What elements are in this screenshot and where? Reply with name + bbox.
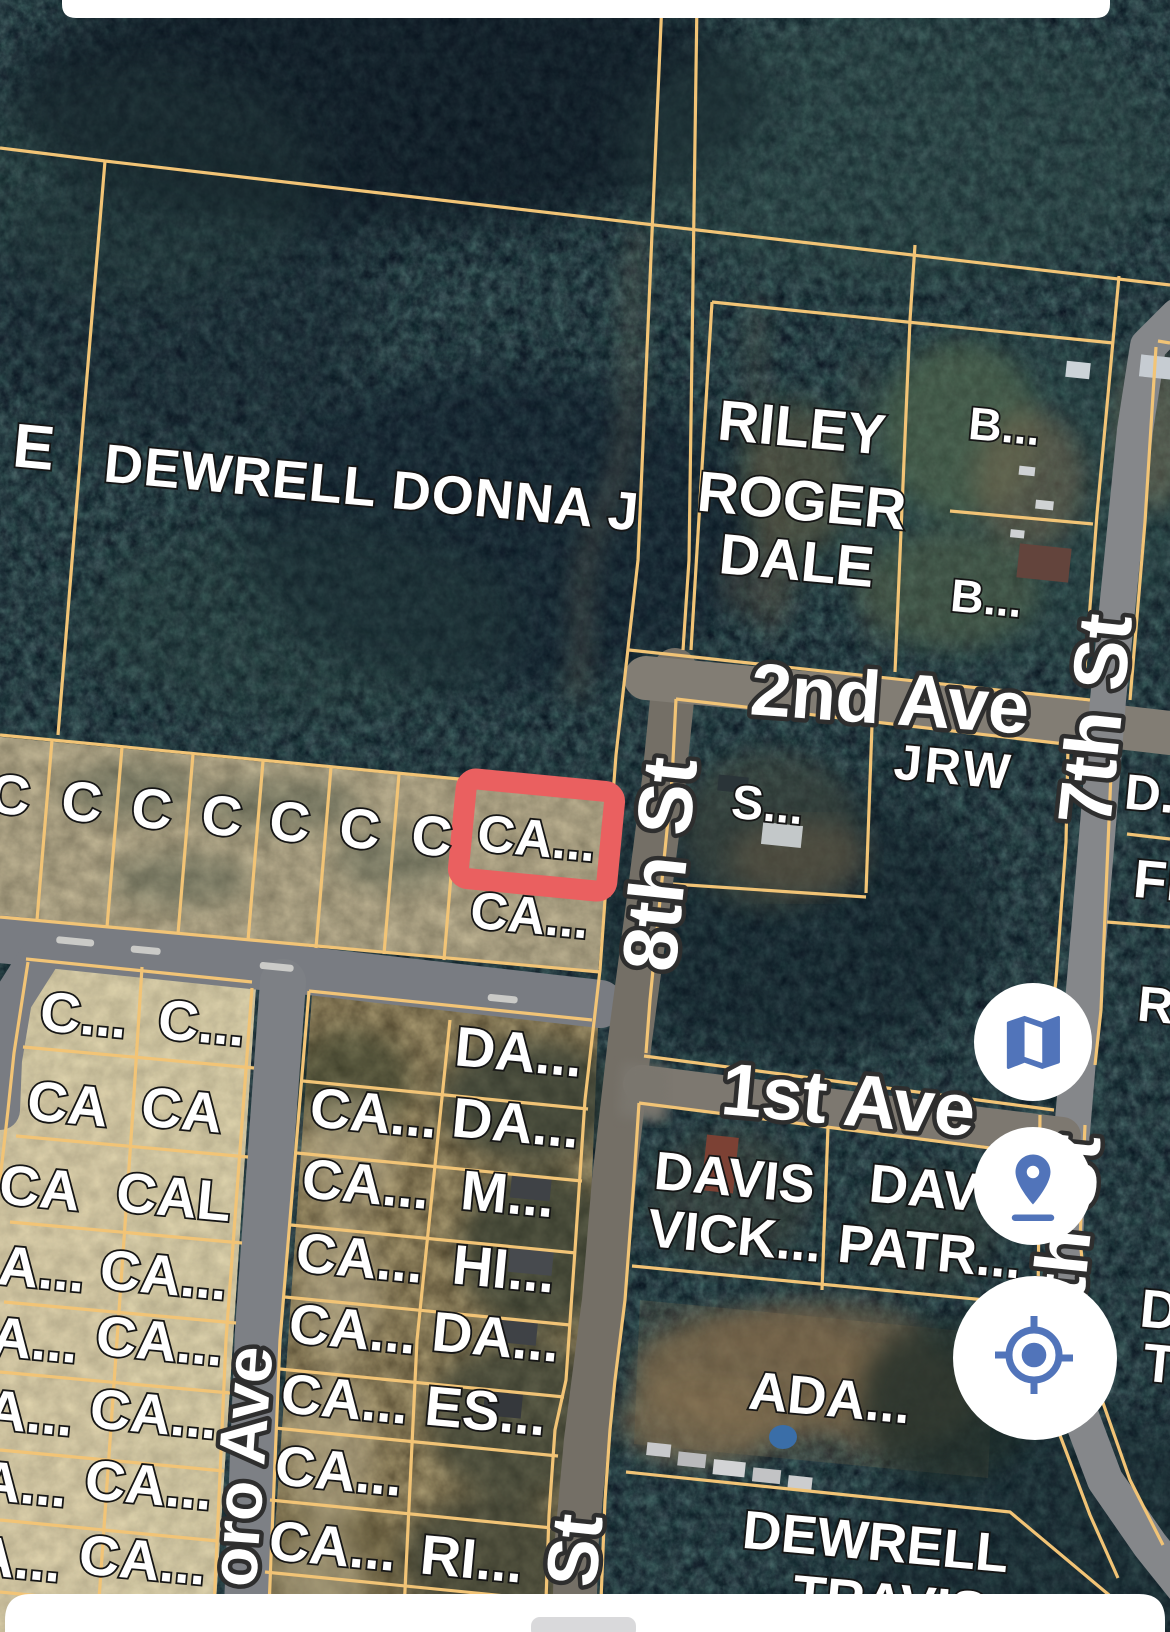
svg-text:C: C <box>409 802 455 868</box>
svg-text:C...: C... <box>38 979 131 1050</box>
svg-text:CA...: CA... <box>293 1220 426 1295</box>
svg-text:CA: CA <box>0 1152 83 1222</box>
svg-text:HI...: HI... <box>450 1232 558 1304</box>
svg-text:CA...: CA... <box>87 1376 220 1451</box>
svg-text:A...: A... <box>0 1377 76 1448</box>
svg-text:R...: R... <box>1135 976 1170 1039</box>
svg-text:CAL: CAL <box>114 1160 234 1233</box>
svg-text:A...: A... <box>0 1448 70 1519</box>
svg-text:CA: CA <box>25 1068 111 1138</box>
svg-text:CA...: CA... <box>266 1508 399 1583</box>
svg-text:DA...: DA... <box>452 1014 585 1089</box>
svg-text:CA...: CA... <box>272 1433 405 1508</box>
svg-text:C: C <box>129 775 175 841</box>
svg-text:M...: M... <box>458 1158 557 1229</box>
svg-text:C: C <box>267 788 313 854</box>
svg-text:FR: FR <box>1131 849 1170 915</box>
svg-text:ES...: ES... <box>422 1374 549 1448</box>
svg-text:T: T <box>1140 1333 1170 1396</box>
svg-text:A...: A... <box>0 1523 64 1594</box>
svg-text:DA...: DA... <box>429 1299 562 1374</box>
svg-text:CA...: CA... <box>286 1291 419 1366</box>
svg-text:CA...: CA... <box>93 1303 226 1378</box>
svg-text:DA...: DA... <box>449 1085 582 1160</box>
svg-text:D: D <box>1137 1278 1170 1341</box>
svg-text:B...: B... <box>966 397 1042 455</box>
svg-text:CA...: CA... <box>97 1237 230 1312</box>
svg-text:C: C <box>59 768 105 834</box>
svg-text:CA...: CA... <box>278 1361 411 1436</box>
svg-text:S...: S... <box>729 776 806 835</box>
svg-text:C...: C... <box>156 987 249 1058</box>
svg-text:CA...: CA... <box>76 1522 209 1597</box>
svg-text:St: St <box>532 1510 619 1590</box>
svg-text:A...: A... <box>0 1233 88 1304</box>
svg-text:E: E <box>10 411 58 484</box>
svg-text:CA...: CA... <box>299 1146 432 1221</box>
svg-text:C: C <box>0 761 33 827</box>
svg-text:CA: CA <box>139 1074 225 1144</box>
svg-text:C: C <box>337 795 383 861</box>
svg-text:B...: B... <box>948 569 1024 627</box>
svg-text:C: C <box>199 782 245 848</box>
svg-text:CA...: CA... <box>307 1075 440 1150</box>
svg-text:RI...: RI... <box>418 1522 526 1594</box>
svg-text:A...: A... <box>0 1304 81 1375</box>
svg-text:CA...: CA... <box>475 805 598 874</box>
svg-text:CA...: CA... <box>82 1447 215 1522</box>
svg-text:CA...: CA... <box>468 882 591 951</box>
